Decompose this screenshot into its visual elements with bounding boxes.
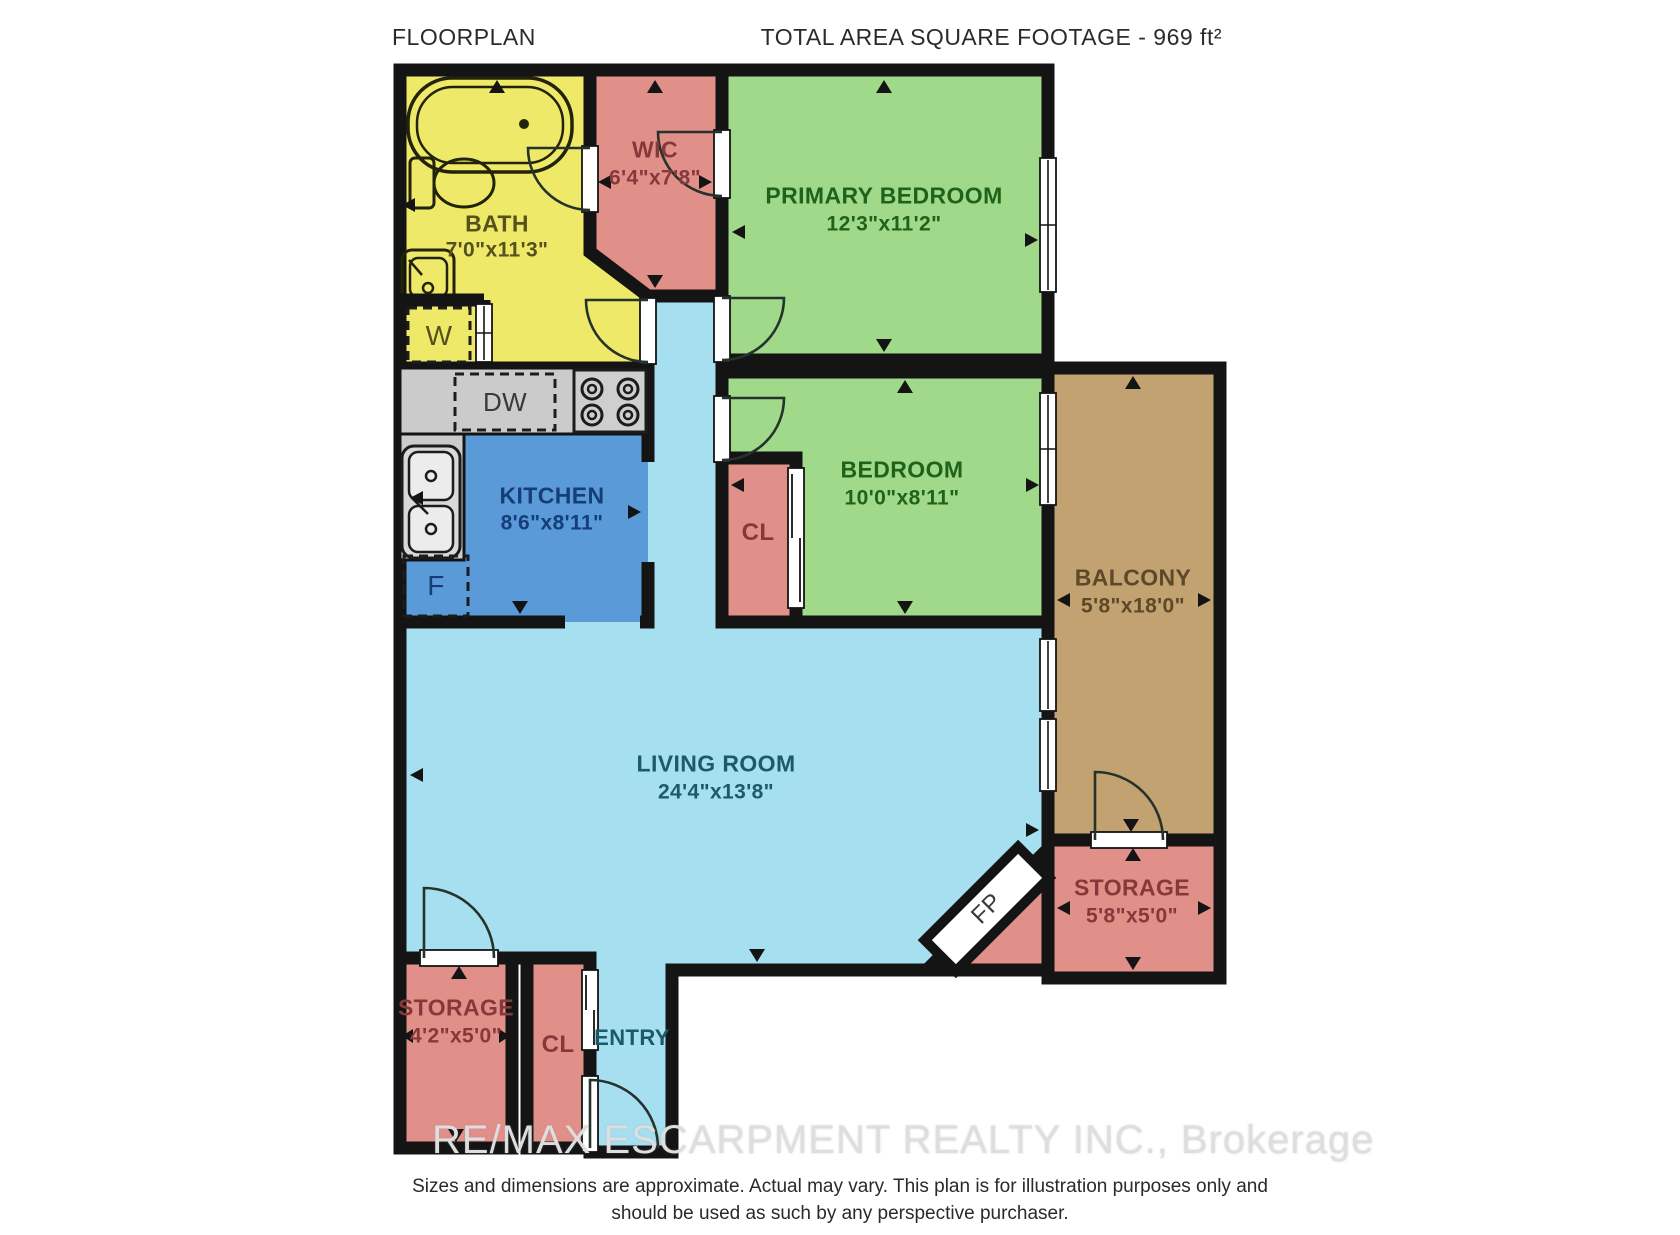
brokerage-watermark: RE/MAX ESCARPMENT REALTY INC., Brokerage	[432, 1118, 1374, 1163]
hall-closet-label: CL	[742, 521, 775, 545]
storage-left-label: STORAGE	[398, 997, 514, 1020]
stove-icon	[574, 370, 646, 432]
balcony-label: BALCONY	[1075, 567, 1192, 590]
bath-dims: 7'0"x11'3"	[446, 240, 549, 261]
primary-bedroom-dims: 12'3"x11'2"	[827, 214, 942, 235]
living-room-dims: 24'4"x13'8"	[658, 782, 774, 803]
storage-right-dims: 5'8"x5'0"	[1086, 906, 1178, 927]
storage-left-dims: 4'2"x5'0"	[410, 1026, 502, 1047]
balcony-dims: 5'8"x18'0"	[1081, 596, 1185, 617]
floorplan-page: FLOORPLAN TOTAL AREA SQUARE FOOTAGE - 96…	[0, 0, 1680, 1235]
fridge-label: F	[427, 572, 445, 600]
bath-label: BATH	[465, 213, 529, 236]
wic-dims: 6'4"x7'8"	[609, 168, 701, 189]
storage-right-label: STORAGE	[1074, 877, 1190, 900]
bedroom-label: BEDROOM	[841, 459, 964, 482]
washer-label: W	[426, 322, 453, 350]
kitchen-dims: 8'6"x8'11"	[501, 513, 604, 534]
disclaimer-text: Sizes and dimensions are approximate. Ac…	[380, 1174, 1300, 1227]
entry-closet-label: CL	[542, 1033, 575, 1057]
dishwasher-label: DW	[483, 389, 527, 415]
disclaimer-line-2: should be used as such by any perspectiv…	[380, 1201, 1300, 1228]
bedroom-dims: 10'0"x8'11"	[845, 488, 960, 509]
primary-bedroom-label: PRIMARY BEDROOM	[765, 185, 1002, 208]
kitchen-label: KITCHEN	[499, 485, 604, 508]
entry-label: ENTRY	[594, 1027, 670, 1049]
kitchen-sink-icon	[402, 446, 460, 558]
wic-label: WIC	[632, 139, 678, 162]
living-room-label: LIVING ROOM	[636, 753, 795, 776]
disclaimer-line-1: Sizes and dimensions are approximate. Ac…	[380, 1174, 1300, 1201]
